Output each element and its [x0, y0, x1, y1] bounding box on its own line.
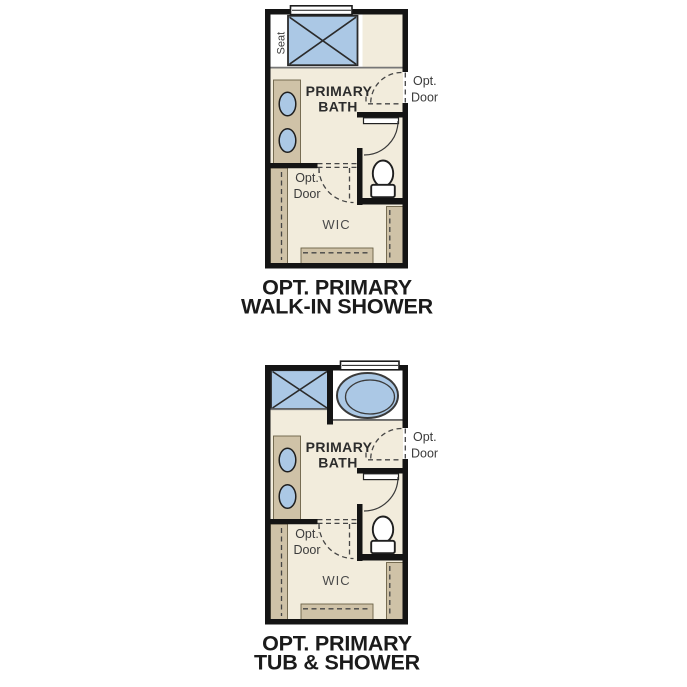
opt-door-bath-label-line1: Opt.	[413, 430, 437, 444]
closet-bottom-shelf	[301, 248, 373, 264]
opt-door-bath-label-line2: Door	[411, 91, 438, 105]
room-label-line1: PRIMARY	[306, 439, 373, 455]
opt-door-wic-label-line2: Door	[293, 543, 320, 557]
opt-door-wic-label-line2: Door	[293, 187, 320, 201]
toilet-fixture	[373, 517, 393, 543]
opt-door-bath-label-line1: Opt.	[413, 74, 437, 88]
sink-basin	[279, 448, 296, 472]
sink-basin	[279, 92, 296, 116]
toilet-tank	[371, 185, 395, 197]
closet-left-shelving	[271, 168, 288, 264]
opt-door-bath-label-line2: Door	[411, 447, 438, 461]
floor-plan-sheet: Seat PRIMARY BATH Opt. Door Opt. Door WI…	[0, 0, 687, 687]
room-label-line2: BATH	[318, 455, 357, 471]
wic-label: WIC	[322, 573, 350, 588]
closet-left-shelving	[271, 524, 288, 620]
wic-label: WIC	[322, 217, 350, 232]
plan-tub-and-shower: PRIMARY BATH Opt. Door Opt. Door WIC OPT…	[254, 361, 438, 674]
caption-line2: WALK-IN SHOWER	[241, 295, 434, 319]
closet-right-shelving	[387, 563, 404, 620]
sink-basin	[279, 129, 296, 153]
opt-door-wic-label-line1: Opt.	[295, 527, 319, 541]
toilet-tank	[371, 541, 395, 553]
floor-plan-diagram: Seat PRIMARY BATH Opt. Door Opt. Door WI…	[0, 0, 687, 687]
toilet-fixture	[373, 161, 393, 187]
toilet-door-panel	[364, 474, 399, 480]
closet-bottom-shelf	[301, 604, 373, 620]
seat-label: Seat	[276, 32, 288, 55]
room-label-line2: BATH	[318, 99, 357, 115]
closet-right-shelving	[387, 207, 404, 264]
caption-line2: TUB & SHOWER	[254, 651, 421, 675]
toilet-door-panel	[364, 118, 399, 124]
room-label-line1: PRIMARY	[306, 83, 373, 99]
sink-basin	[279, 485, 296, 509]
opt-door-wic-label-line1: Opt.	[295, 171, 319, 185]
plan-walk-in-shower: Seat PRIMARY BATH Opt. Door Opt. Door WI…	[241, 6, 438, 319]
